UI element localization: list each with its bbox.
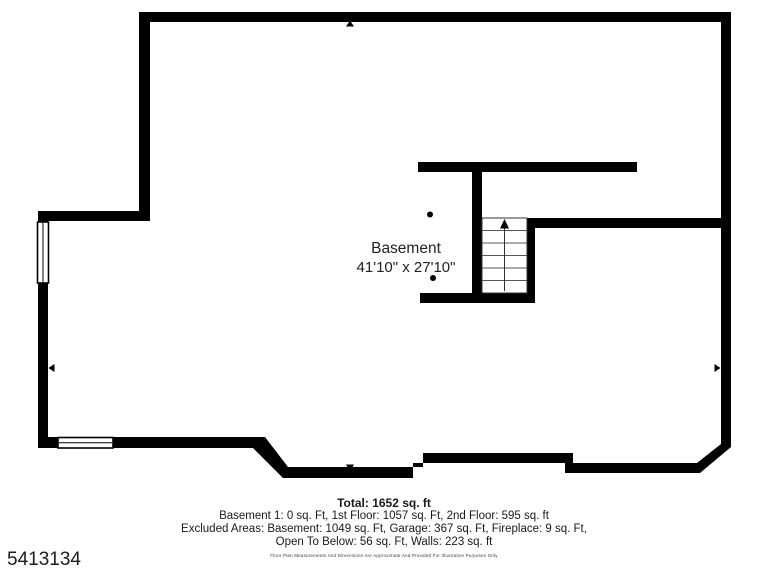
floor-areas-line: Basement 1: 0 sq. Ft, 1st Floor: 1057 sq… <box>0 510 768 523</box>
room-label-block: Basement 41'10" x 27'10" <box>357 239 456 277</box>
stair-bottom-wall <box>420 293 535 303</box>
room-name-label: Basement <box>357 239 456 258</box>
window-bottom-wall-icon <box>58 438 113 449</box>
wall-marker-right-icon <box>715 364 721 372</box>
listing-id-watermark: 5413134 <box>7 550 81 570</box>
floor-plan-page: Basement 41'10" x 27'10" Total: 1652 sq.… <box>0 0 768 576</box>
stair-top-wall <box>418 162 637 172</box>
disclaimer-text: Floor Plan Measurements And Dimensions A… <box>0 553 768 558</box>
hall-wall-to-right <box>527 218 722 228</box>
window-symbols <box>38 222 114 448</box>
area-summary: Total: 1652 sq. ft Basement 1: 0 sq. Ft,… <box>0 497 768 558</box>
excluded-areas-line: Excluded Areas: Basement: 1049 sq. Ft, G… <box>0 523 768 536</box>
floor-plan-drawing <box>0 0 768 576</box>
room-dimensions-label: 41'10" x 27'10" <box>357 258 456 277</box>
support-column-dot-top <box>427 212 433 218</box>
stair-enclosure-walls <box>418 162 722 303</box>
staircase <box>482 218 527 293</box>
stair-right-wall <box>527 218 535 303</box>
excluded-areas-line-2: Open To Below: 56 sq. Ft, Walls: 223 sq.… <box>0 536 768 549</box>
wall-marker-left-icon <box>49 364 55 372</box>
stair-left-wall <box>472 172 482 303</box>
window-left-wall-icon <box>38 222 49 283</box>
total-area-label: Total: 1652 sq. ft <box>0 497 768 510</box>
